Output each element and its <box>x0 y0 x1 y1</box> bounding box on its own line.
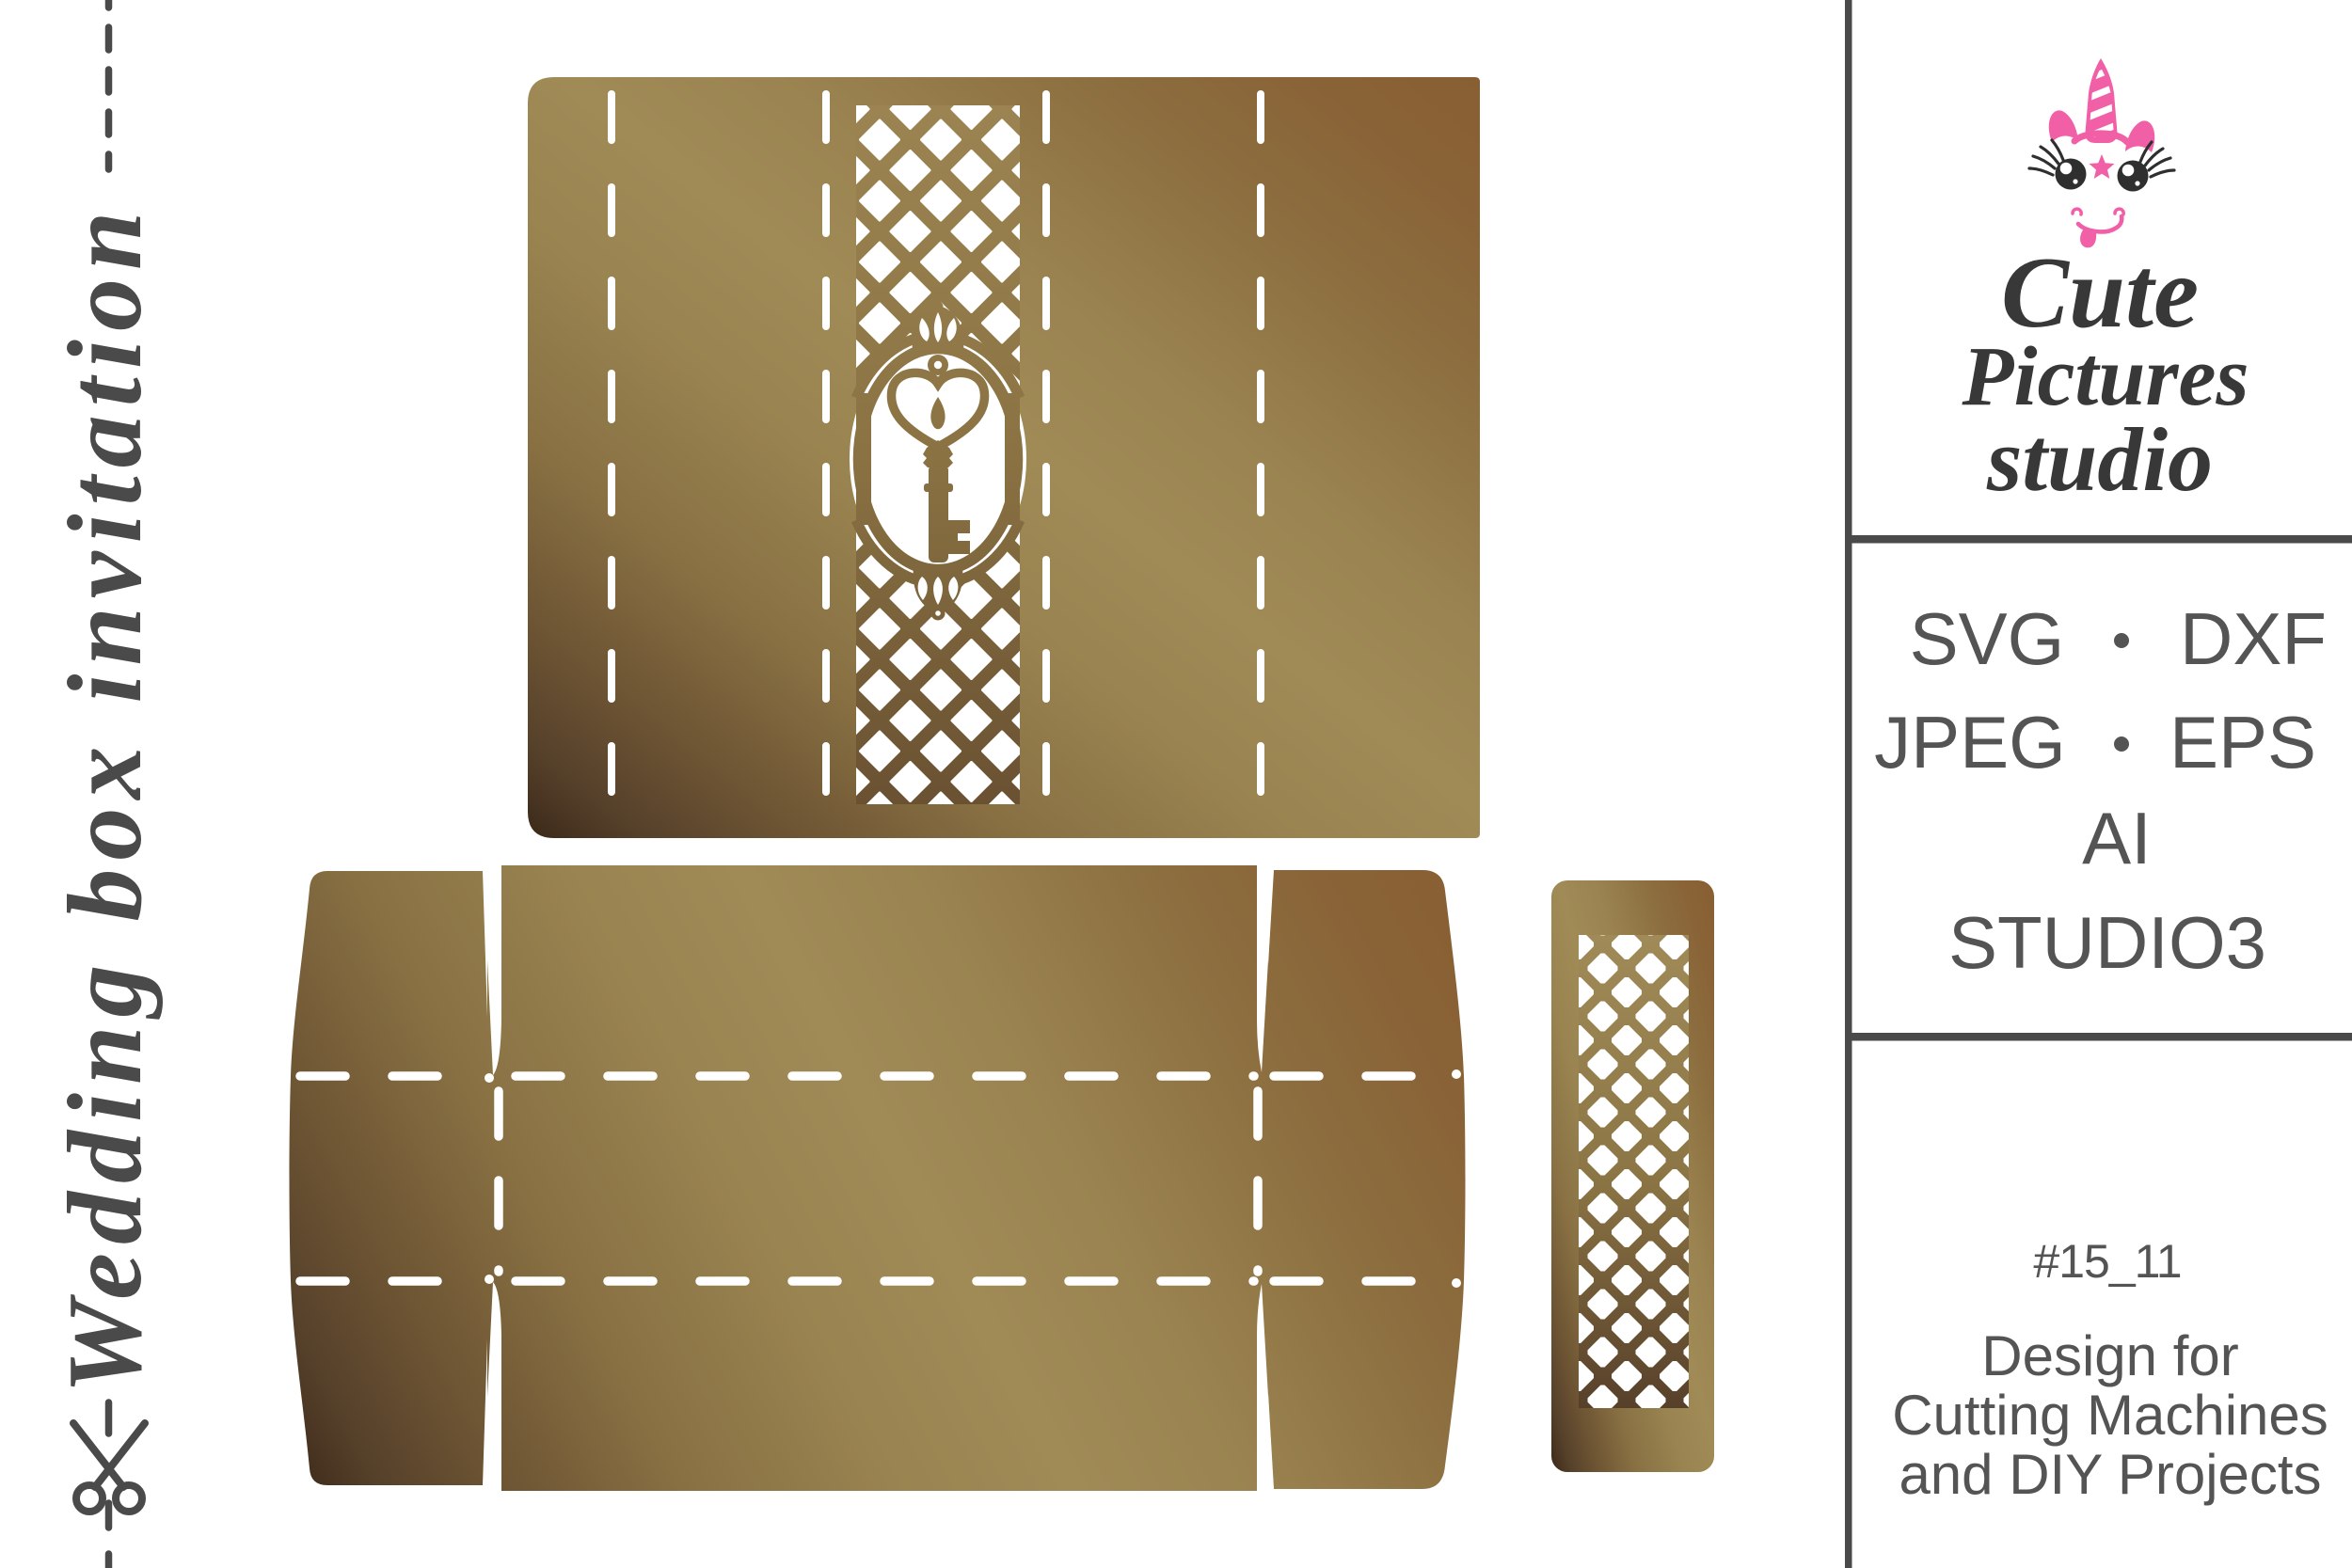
svg-text:EPS: EPS <box>2169 701 2316 784</box>
svg-text:studio: studio <box>1986 409 2213 510</box>
svg-text:Design for: Design for <box>1981 1324 2238 1387</box>
svg-text:AI: AI <box>2082 797 2152 879</box>
svg-text:Cutting Machines: Cutting Machines <box>1892 1384 2328 1447</box>
svg-text:and DIY Projects: and DIY Projects <box>1899 1443 2321 1506</box>
svg-text:#15_11: #15_11 <box>2033 1235 2181 1288</box>
svg-text:STUDIO3: STUDIO3 <box>1948 901 2266 984</box>
svg-text:JPEG: JPEG <box>1874 701 2066 784</box>
svg-text:SVG: SVG <box>1910 597 2065 680</box>
svg-text:DXF: DXF <box>2180 597 2327 680</box>
svg-text:Wedding box invitation: Wedding box invitation <box>47 203 164 1394</box>
